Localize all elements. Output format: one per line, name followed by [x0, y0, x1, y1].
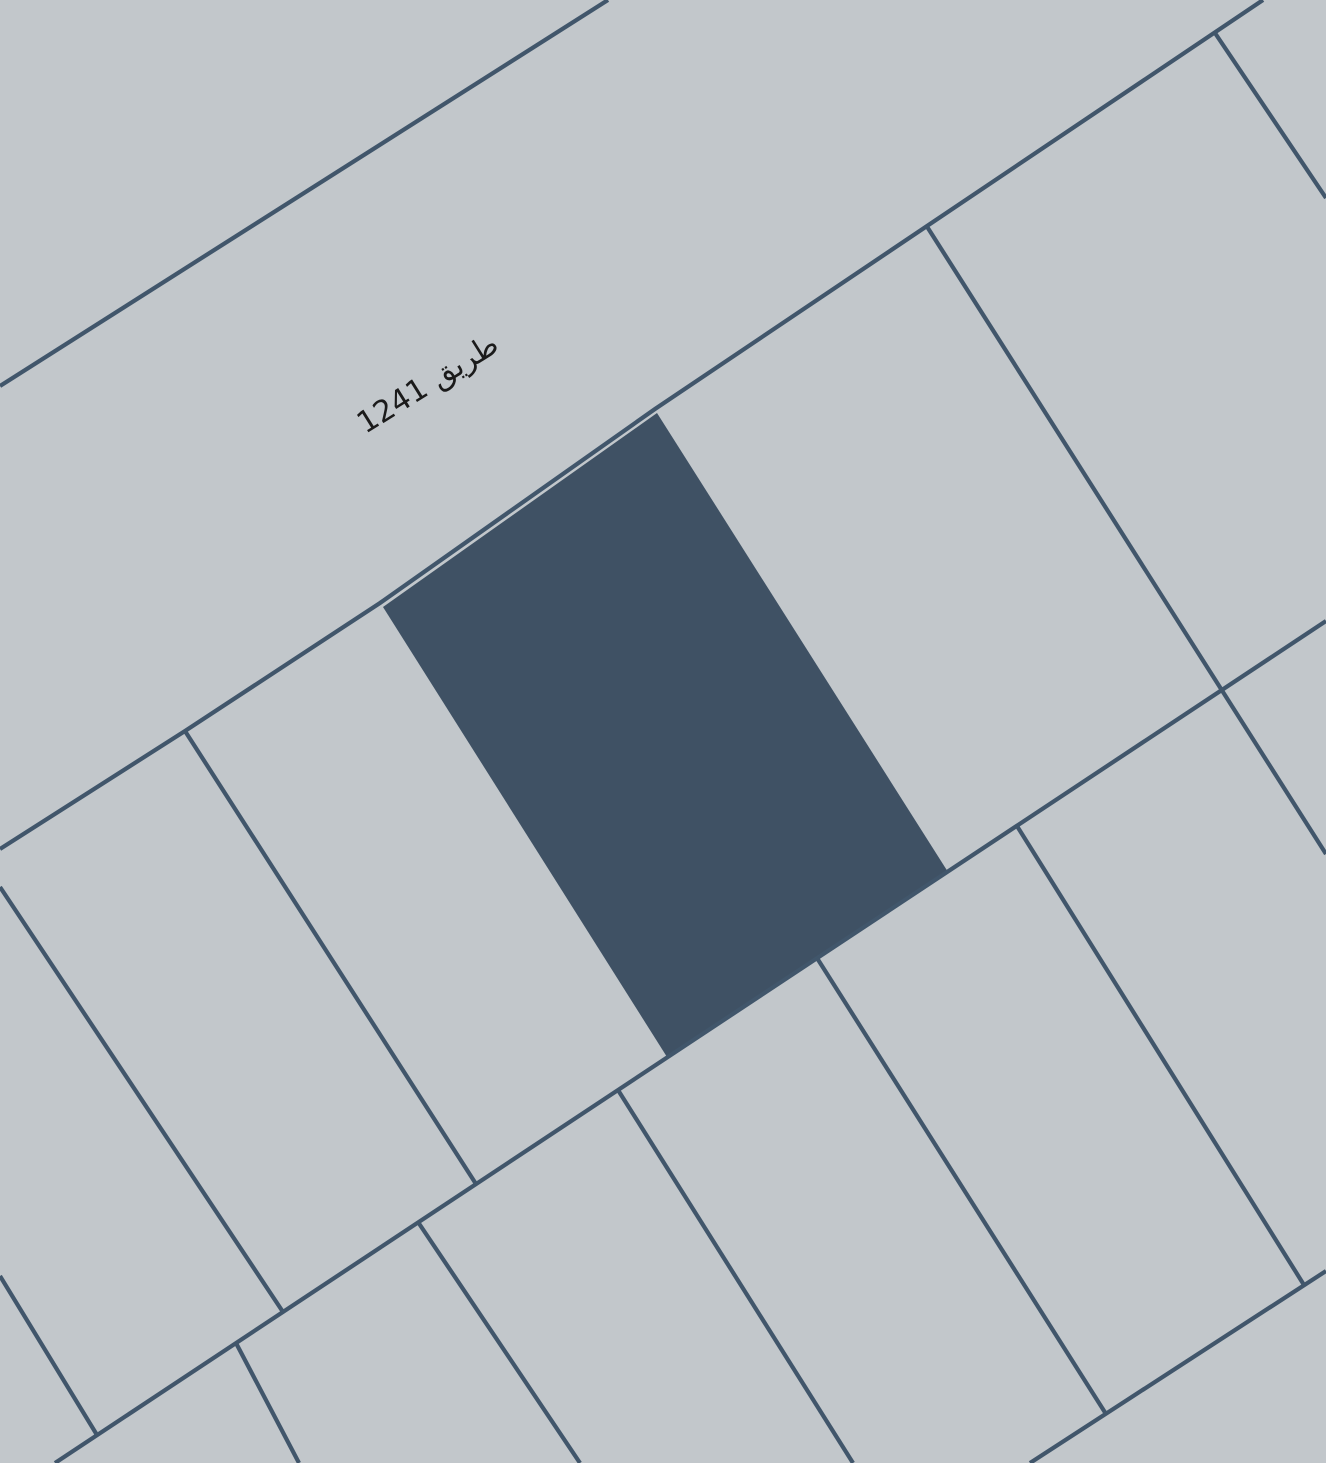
map-canvas[interactable]: طريق 1241: [0, 0, 1326, 1463]
parcel-map-svg: طريق 1241: [0, 0, 1326, 1463]
